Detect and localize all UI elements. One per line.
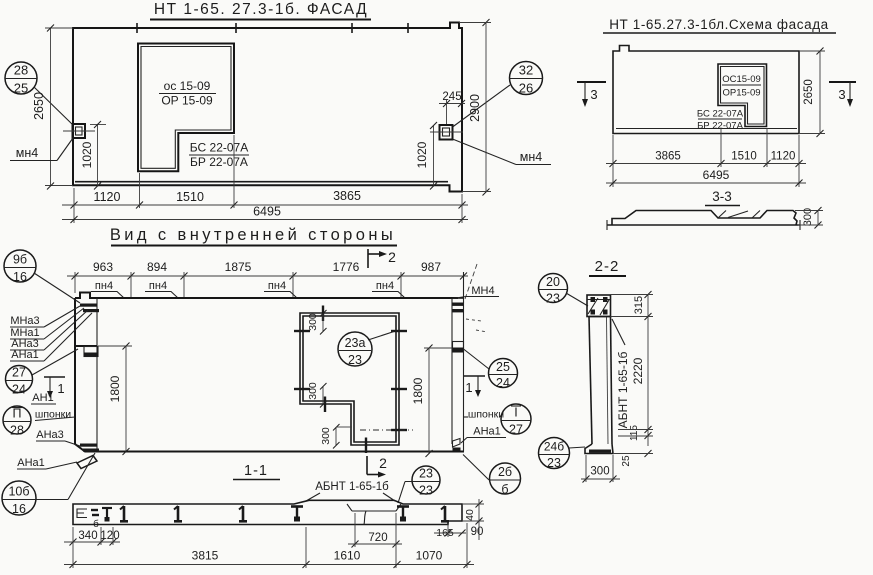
svg-text:340: 340 [78,530,97,542]
svg-text:16: 16 [13,270,27,284]
svg-text:Вид с внутренней стороны: Вид с внутренней стороны [110,226,396,244]
svg-text:26: 26 [519,81,533,96]
svg-text:300: 300 [307,382,319,400]
svg-text:1120: 1120 [94,190,121,204]
svg-text:300: 300 [307,313,319,331]
svg-text:27: 27 [12,366,26,380]
svg-text:АНа1: АНа1 [473,426,501,438]
svg-text:315: 315 [633,296,645,314]
svg-text:25: 25 [14,81,28,96]
svg-text:90: 90 [471,526,484,538]
svg-text:1: 1 [57,381,64,396]
svg-text:2: 2 [388,249,396,265]
svg-text:2650: 2650 [803,79,815,105]
svg-text:б: б [93,518,99,530]
svg-text:ОР15-09: ОР15-09 [722,88,760,99]
svg-text:3865: 3865 [655,151,681,163]
svg-text:МНа3: МНа3 [10,315,39,327]
svg-text:23: 23 [546,292,560,306]
svg-text:23: 23 [348,353,362,367]
svg-text:1875: 1875 [225,260,252,274]
svg-text:1776: 1776 [333,260,360,274]
svg-text:1020: 1020 [415,141,429,168]
svg-text:пн4: пн4 [95,280,113,292]
svg-text:40: 40 [464,509,476,521]
svg-text:1510: 1510 [176,190,204,204]
svg-text:25: 25 [621,455,632,467]
svg-text:3815: 3815 [192,549,219,563]
svg-text:6495: 6495 [703,168,730,182]
svg-text:3-3: 3-3 [712,189,732,204]
svg-text:шпонки: шпонки [468,409,504,421]
svg-text:20: 20 [546,275,560,289]
svg-text:25: 25 [496,360,510,374]
svg-text:987: 987 [421,260,441,274]
svg-text:1-1: 1-1 [244,463,268,479]
svg-text:пн4: пн4 [268,280,286,292]
svg-text:10б: 10б [8,485,29,499]
svg-text:28: 28 [10,424,24,438]
svg-text:1800: 1800 [108,375,122,402]
svg-text:БС 22-07А: БС 22-07А [697,109,744,120]
svg-text:1120: 1120 [771,151,796,163]
svg-text:1020: 1020 [80,141,94,168]
svg-text:23: 23 [547,456,561,470]
svg-text:АНа1: АНа1 [11,349,39,361]
svg-text:б: б [501,483,508,497]
svg-text:БС 22-07А: БС 22-07А [190,141,248,155]
svg-text:720: 720 [368,532,387,544]
svg-text:2б: 2б [498,465,512,479]
svg-text:23а: 23а [345,336,366,350]
svg-text:894: 894 [147,260,167,274]
svg-text:3: 3 [838,87,845,102]
svg-text:115: 115 [629,425,640,441]
svg-text:мн4: мн4 [16,146,38,160]
svg-text:пн4: пн4 [149,280,167,292]
svg-text:АНа3: АНа3 [36,429,64,441]
svg-text:23: 23 [419,467,433,481]
svg-text:пн4: пн4 [376,280,394,292]
svg-text:АБНТ 1-65-1б: АБНТ 1-65-1б [315,481,389,493]
svg-text:24: 24 [12,383,26,397]
svg-text:24б: 24б [544,440,564,454]
svg-text:3865: 3865 [333,189,361,203]
svg-text:1510: 1510 [731,151,757,163]
svg-text:БР 22-07А: БР 22-07А [697,121,744,132]
svg-text:28: 28 [14,63,28,78]
svg-text:2900: 2900 [468,94,482,122]
svg-text:3: 3 [590,87,597,102]
svg-text:23: 23 [419,484,433,498]
svg-text:6495: 6495 [253,205,281,219]
svg-text:2650: 2650 [32,92,46,120]
svg-text:1070: 1070 [416,549,443,563]
svg-text:ОР 15-09: ОР 15-09 [161,94,213,108]
svg-text:НТ 1-65.27.3-1бл.Схема фасада: НТ 1-65.27.3-1бл.Схема фасада [609,17,829,32]
svg-text:2-2: 2-2 [595,258,620,275]
svg-text:1: 1 [465,380,472,395]
svg-text:1610: 1610 [334,549,361,563]
svg-text:1800: 1800 [411,377,425,404]
svg-text:2220: 2220 [631,357,645,384]
svg-text:мн4: мн4 [520,150,542,164]
svg-text:БР 22-07А: БР 22-07А [190,155,248,169]
svg-text:ос 15-09: ос 15-09 [164,79,211,93]
svg-text:ОС15-09: ОС15-09 [722,74,761,85]
svg-text:300: 300 [320,427,332,445]
svg-text:24: 24 [496,376,510,390]
svg-text:АНа1: АНа1 [17,457,45,469]
svg-text:16: 16 [12,502,26,516]
svg-text:I: I [514,406,517,420]
svg-text:245: 245 [442,91,461,103]
svg-text:АБНТ 1-65-1б: АБНТ 1-65-1б [616,351,630,428]
svg-text:2: 2 [379,455,387,471]
svg-text:НТ 1-65. 27.3-1б. ФАСАД: НТ 1-65. 27.3-1б. ФАСАД [154,1,368,18]
svg-text:27: 27 [509,423,523,437]
svg-text:32: 32 [519,63,533,78]
svg-text:300: 300 [590,466,609,478]
svg-text:9б: 9б [13,253,27,267]
svg-text:963: 963 [93,260,113,274]
svg-text:АН1: АН1 [32,392,53,404]
svg-text:МН4: МН4 [471,285,494,297]
svg-text:П: П [13,407,22,421]
